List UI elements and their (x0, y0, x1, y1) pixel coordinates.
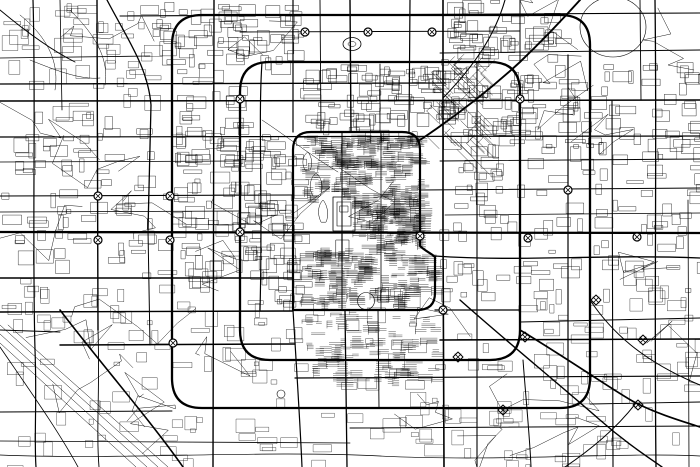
arterial-road (293, 310, 302, 467)
arterial-road (345, 310, 347, 467)
street-block-texture (561, 63, 700, 165)
west-railway-station (183, 266, 209, 275)
arterial-road (0, 232, 700, 233)
building-fill (177, 108, 243, 236)
arterial-road (688, 200, 689, 467)
zhongnanhai-lake (319, 200, 328, 222)
street-block-texture (440, 157, 700, 304)
expressway-diagonal (20, 15, 56, 90)
arterial-road (443, 232, 444, 467)
arterial-road (350, 426, 700, 428)
arterial-road (440, 159, 700, 161)
moat-river-segment-1 (390, 248, 415, 256)
arterial-road (0, 100, 700, 101)
interchange-cross (593, 297, 599, 303)
arterial-road (612, 100, 613, 467)
minor-road (643, 8, 694, 70)
minor-road (618, 252, 678, 279)
north-railway-station (250, 133, 261, 153)
arterial-road (0, 454, 700, 458)
street-block-texture (244, 135, 315, 312)
expressway-diagonal (60, 310, 183, 467)
building-fill (46, 388, 694, 456)
minor-road (571, 114, 633, 154)
street-block-texture (2, 4, 162, 120)
expressway-diagonal (0, 347, 78, 467)
minor-road (414, 298, 470, 337)
street-block-texture (301, 65, 458, 146)
minor-road (534, 55, 588, 91)
arterial-road (655, 0, 656, 467)
northwest-strip (143, 40, 149, 63)
minor-road (26, 320, 112, 359)
arterial-road (420, 188, 700, 190)
arterial-road (0, 330, 60, 332)
arterial-road (295, 376, 700, 378)
arterial-road (0, 56, 150, 58)
street-block-texture (300, 248, 443, 310)
map-image (0, 0, 700, 467)
minor-road (510, 417, 599, 456)
arterial-road (0, 211, 240, 212)
arterial-road (0, 195, 293, 196)
minor-road (520, 0, 578, 50)
forbidden-city-inner-wall (337, 202, 351, 226)
stadium-oval (343, 38, 361, 51)
arterial-road (0, 161, 240, 162)
street-block-texture (2, 111, 257, 292)
railway-line (0, 343, 136, 467)
minor-road (195, 240, 240, 291)
arterial-road (0, 411, 172, 412)
temple-of-heaven-circle (358, 293, 375, 310)
arterial-road (350, 0, 351, 132)
arterial-road (409, 0, 410, 132)
railway-line (0, 334, 147, 467)
minor-road (538, 85, 594, 129)
street-block-texture (302, 311, 443, 386)
arterial-road (240, 31, 520, 32)
arterial-road (0, 311, 293, 312)
building-fill (32, 2, 145, 84)
minor-road (457, 428, 502, 467)
arterial-road (60, 344, 295, 345)
street-block-texture (152, 2, 304, 74)
arterial-road (440, 50, 700, 53)
expressway-diagonal (70, 10, 106, 85)
southwest-roundabout-park (277, 390, 285, 398)
arterial-road (98, 330, 99, 467)
railway-line (0, 325, 158, 467)
building-fill (463, 162, 699, 283)
arterial-road (440, 339, 700, 340)
arterial-road (0, 83, 445, 84)
building-fill (608, 99, 691, 154)
arterial-road (148, 230, 150, 345)
arterial-road (260, 62, 262, 310)
minor-road (228, 21, 297, 56)
arterial-road (640, 0, 641, 100)
arterial-road (0, 136, 700, 137)
arterial-road (590, 402, 700, 404)
minor-road (61, 15, 154, 41)
forbidden-city-hall (340, 206, 348, 212)
map-canvas (0, 0, 700, 467)
stadium-oval-inner (348, 42, 356, 47)
arterial-road (97, 0, 98, 330)
